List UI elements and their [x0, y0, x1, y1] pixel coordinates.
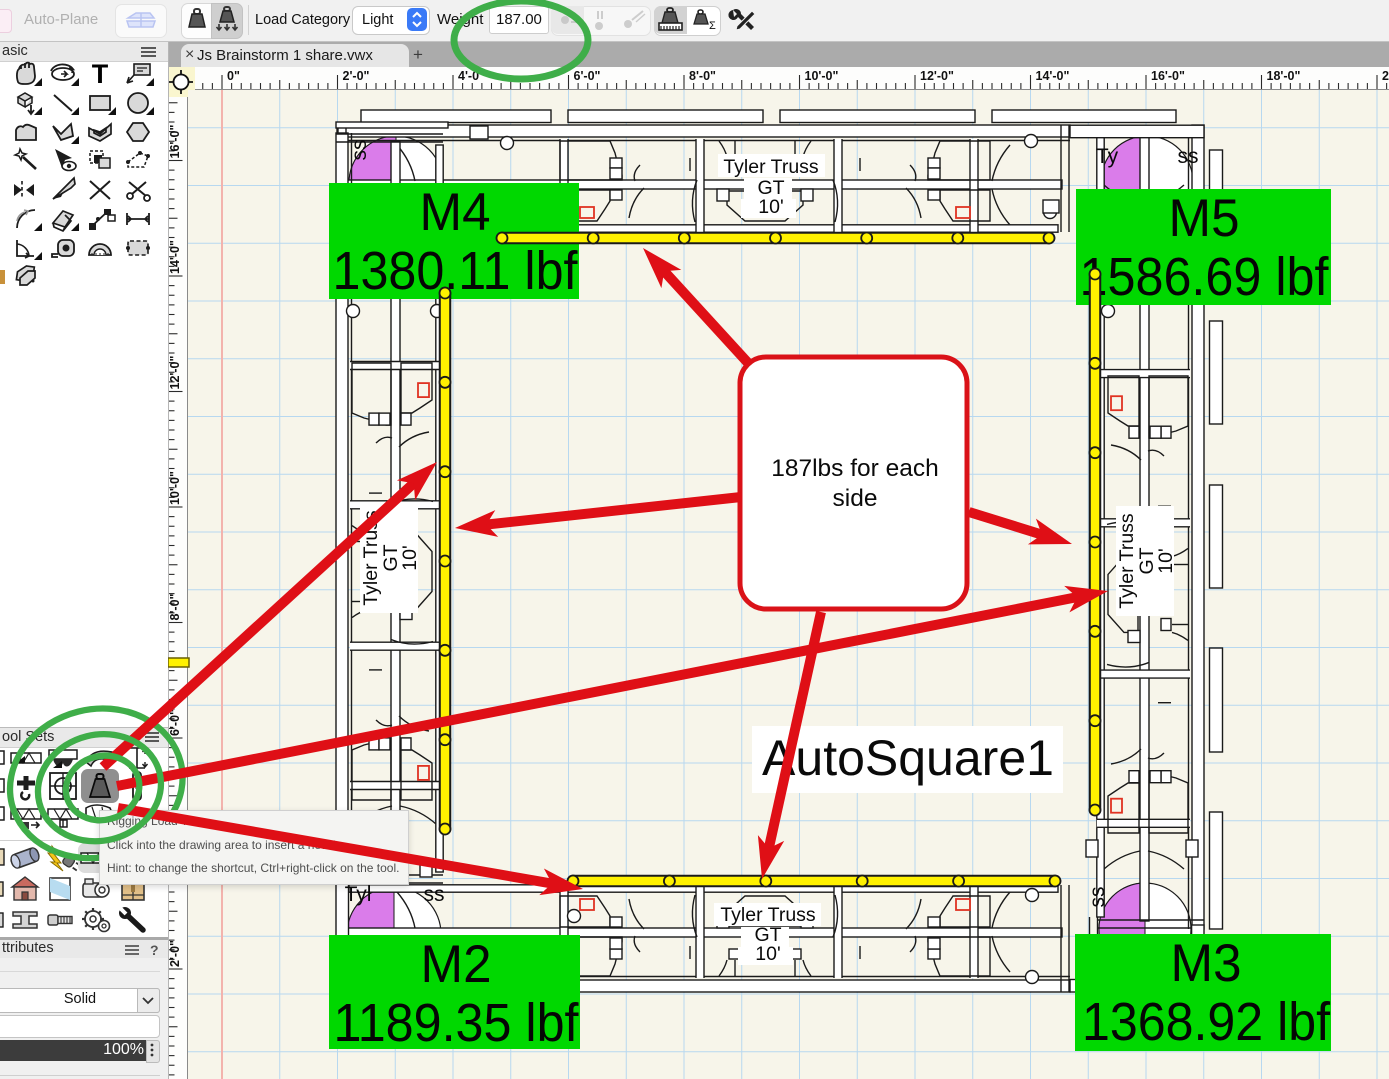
svg-text:4'-0": 4'-0": [458, 69, 485, 83]
svg-text:1368.92 lbf: 1368.92 lbf: [1082, 992, 1331, 1052]
svg-text:0": 0": [227, 69, 240, 83]
svg-text:10'-0": 10'-0": [168, 471, 182, 505]
svg-text:Tyler Truss: Tyler Truss: [723, 156, 819, 178]
svg-text:6'-0": 6'-0": [168, 709, 182, 736]
svg-text:Tyler Truss: Tyler Truss: [720, 904, 816, 926]
svg-text:14'-0": 14'-0": [168, 240, 182, 274]
svg-text:1586.69 lbf: 1586.69 lbf: [1080, 247, 1330, 307]
svg-text:1189.35 lbf: 1189.35 lbf: [334, 993, 580, 1053]
svg-text:10': 10': [399, 545, 421, 570]
svg-text:M4: M4: [420, 183, 491, 242]
svg-text:14'-0": 14'-0": [1036, 69, 1070, 83]
svg-text:8'-0": 8'-0": [168, 593, 182, 620]
svg-text:2'-0": 2'-0": [343, 69, 370, 83]
svg-text:ss: ss: [348, 140, 371, 161]
svg-text:ss: ss: [1178, 145, 1199, 168]
svg-text:Tyler Truss: Tyler Truss: [1116, 513, 1138, 609]
svg-text:?: ?: [150, 944, 159, 956]
svg-text:Tyl: Tyl: [345, 883, 372, 906]
svg-text:1380.11 lbf: 1380.11 lbf: [333, 241, 579, 301]
svg-text:Tyler Truss: Tyler Truss: [360, 510, 382, 606]
svg-text:10'-0": 10'-0": [805, 69, 839, 83]
svg-text:12'-0": 12'-0": [168, 356, 182, 390]
svg-text:16'-0": 16'-0": [168, 125, 182, 159]
svg-text:Σ: Σ: [709, 20, 716, 32]
svg-text:side: side: [833, 485, 878, 512]
svg-text:12'-0": 12'-0": [920, 69, 954, 83]
svg-text:10': 10': [1155, 548, 1177, 573]
svg-text:2: 2: [1382, 69, 1389, 83]
svg-text:10': 10': [758, 196, 783, 218]
svg-text:8'-0": 8'-0": [689, 69, 716, 83]
svg-text:Ty: Ty: [1096, 145, 1119, 168]
svg-text:18'-0": 18'-0": [1267, 69, 1301, 83]
svg-text:187lbs for each: 187lbs for each: [771, 455, 939, 482]
svg-text:ss: ss: [424, 883, 445, 906]
svg-text:M5: M5: [1169, 189, 1240, 248]
svg-text:6'-0": 6'-0": [574, 69, 601, 83]
svg-text:T: T: [92, 61, 109, 89]
svg-text:M3: M3: [1171, 934, 1242, 993]
svg-text:16'-0": 16'-0": [1151, 69, 1185, 83]
svg-text:10': 10': [755, 943, 780, 965]
svg-text:M2: M2: [421, 935, 492, 994]
svg-text:ss: ss: [1086, 887, 1109, 908]
svg-text:AutoSquare1: AutoSquare1: [762, 730, 1054, 786]
svg-text:2'-0": 2'-0": [168, 940, 182, 967]
